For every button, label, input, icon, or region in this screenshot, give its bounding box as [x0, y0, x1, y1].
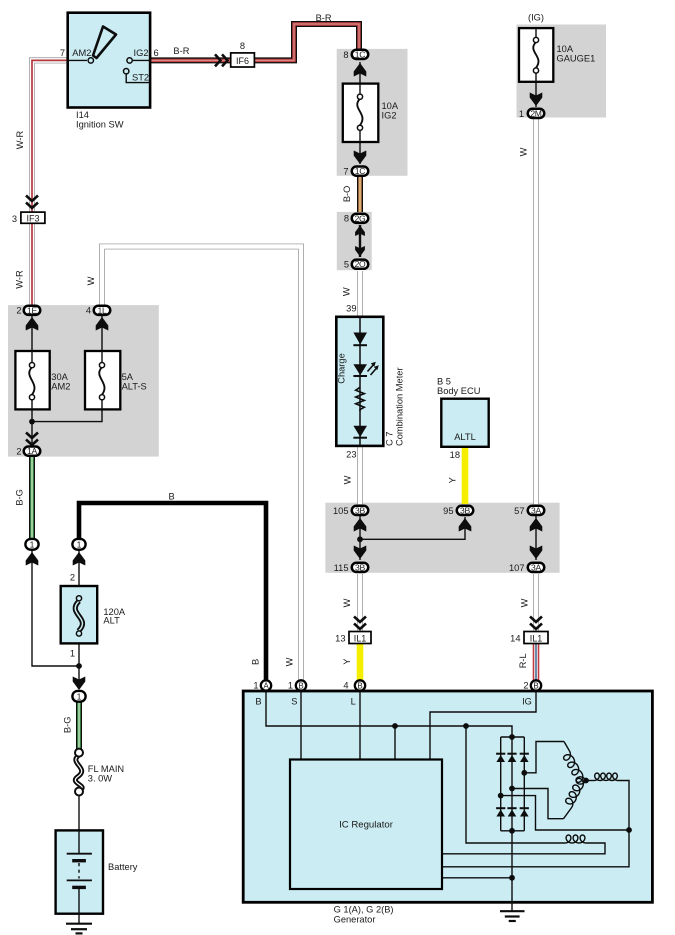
- svg-text:7: 7: [60, 48, 65, 58]
- svg-text:6: 6: [154, 48, 159, 58]
- svg-text:105: 105: [333, 506, 349, 516]
- svg-text:IL1: IL1: [354, 633, 367, 643]
- svg-text:7: 7: [343, 167, 348, 177]
- svg-text:1: 1: [70, 648, 75, 658]
- svg-text:IG2: IG2: [134, 48, 149, 58]
- svg-text:W: W: [86, 276, 96, 285]
- svg-text:Y: Y: [447, 477, 457, 483]
- svg-text:8: 8: [344, 214, 349, 224]
- svg-text:B-R: B-R: [316, 13, 332, 23]
- svg-text:ALTL: ALTL: [454, 432, 476, 442]
- svg-text:Body ECU: Body ECU: [437, 386, 480, 396]
- svg-text:AM2: AM2: [72, 48, 91, 58]
- svg-text:3A: 3A: [531, 562, 541, 572]
- svg-text:1: 1: [30, 539, 35, 549]
- svg-text:Generator: Generator: [334, 915, 376, 925]
- svg-text:ST2: ST2: [132, 73, 149, 83]
- svg-text:18: 18: [450, 450, 460, 460]
- svg-text:1L: 1L: [98, 305, 107, 315]
- svg-text:1A: 1A: [27, 446, 37, 456]
- svg-text:IF3: IF3: [26, 213, 39, 223]
- svg-text:B: B: [168, 492, 174, 502]
- svg-text:3B: 3B: [355, 562, 365, 572]
- svg-text:95: 95: [443, 506, 453, 516]
- svg-text:IL1: IL1: [530, 633, 543, 643]
- svg-text:2: 2: [16, 306, 21, 316]
- svg-text:G 1(A), G 2(B): G 1(A), G 2(B): [334, 905, 394, 915]
- svg-text:3. 0W: 3. 0W: [88, 773, 113, 783]
- svg-text:1E: 1E: [27, 305, 37, 315]
- svg-text:A: A: [263, 681, 269, 690]
- svg-text:B: B: [255, 697, 261, 707]
- svg-text:23: 23: [346, 449, 356, 459]
- svg-text:1: 1: [77, 539, 82, 549]
- svg-text:2: 2: [70, 573, 75, 583]
- svg-text:B 5: B 5: [437, 376, 451, 386]
- svg-text:Y: Y: [342, 658, 352, 664]
- svg-text:8: 8: [240, 41, 245, 51]
- svg-text:1: 1: [288, 681, 293, 691]
- svg-text:IF6: IF6: [236, 56, 249, 66]
- svg-text:2M: 2M: [530, 108, 541, 118]
- svg-text:2G: 2G: [355, 213, 366, 223]
- svg-text:4: 4: [86, 306, 91, 316]
- svg-text:W-R: W-R: [15, 131, 25, 150]
- svg-text:W: W: [342, 598, 352, 607]
- svg-text:B-O: B-O: [342, 186, 352, 203]
- svg-text:1: 1: [519, 109, 524, 119]
- svg-text:39: 39: [346, 304, 356, 314]
- svg-text:W: W: [519, 147, 529, 156]
- svg-text:B-R: B-R: [173, 46, 189, 56]
- svg-text:R-L: R-L: [518, 653, 528, 668]
- svg-text:10A: 10A: [382, 101, 399, 111]
- svg-text:2O: 2O: [355, 259, 366, 269]
- svg-text:C 7: C 7: [385, 432, 395, 446]
- svg-text:Charge: Charge: [337, 353, 347, 384]
- svg-text:GAUGE1: GAUGE1: [557, 54, 596, 64]
- svg-text:115: 115: [334, 563, 349, 573]
- svg-text:B: B: [533, 681, 538, 690]
- svg-text:Combination Meter: Combination Meter: [395, 367, 405, 446]
- svg-text:2: 2: [523, 681, 528, 691]
- svg-text:IG: IG: [522, 697, 532, 707]
- svg-text:1: 1: [253, 681, 258, 691]
- svg-text:Battery: Battery: [108, 862, 138, 872]
- svg-text:1C: 1C: [355, 49, 365, 59]
- svg-text:B-G: B-G: [62, 717, 72, 734]
- svg-text:IG2: IG2: [382, 111, 397, 121]
- svg-text:ALT: ALT: [103, 616, 120, 626]
- svg-text:8: 8: [343, 50, 348, 60]
- svg-text:30A: 30A: [51, 372, 68, 382]
- svg-text:10A: 10A: [557, 44, 574, 54]
- svg-text:S: S: [291, 697, 297, 707]
- svg-text:B: B: [357, 681, 362, 690]
- svg-text:W: W: [519, 598, 529, 607]
- svg-text:W: W: [343, 475, 353, 484]
- svg-text:B-G: B-G: [14, 489, 24, 506]
- svg-text:1: 1: [77, 691, 82, 701]
- svg-text:3B: 3B: [460, 505, 470, 515]
- svg-text:I14: I14: [76, 110, 89, 120]
- svg-text:5: 5: [344, 260, 349, 270]
- svg-text:57: 57: [514, 506, 524, 516]
- svg-text:14: 14: [510, 634, 520, 644]
- svg-text:3: 3: [12, 214, 17, 224]
- svg-text:IC Regulator: IC Regulator: [339, 820, 394, 831]
- svg-text:W: W: [285, 657, 295, 666]
- svg-text:ALT-S: ALT-S: [122, 381, 147, 391]
- svg-text:W-R: W-R: [15, 270, 25, 289]
- svg-text:13: 13: [335, 634, 345, 644]
- svg-text:4: 4: [343, 681, 348, 691]
- svg-text:Ignition SW: Ignition SW: [76, 119, 124, 129]
- svg-text:5A: 5A: [122, 372, 134, 382]
- svg-text:(IG): (IG): [528, 13, 544, 23]
- svg-text:107: 107: [509, 563, 525, 573]
- svg-text:3A: 3A: [531, 505, 541, 515]
- svg-text:B: B: [298, 681, 303, 690]
- svg-text:AM2: AM2: [51, 381, 70, 391]
- svg-text:2: 2: [16, 447, 21, 457]
- svg-text:1C: 1C: [355, 166, 365, 176]
- svg-text:B: B: [250, 659, 260, 665]
- svg-text:3B: 3B: [355, 505, 365, 515]
- svg-text:L: L: [351, 697, 356, 707]
- svg-text:W: W: [341, 287, 351, 296]
